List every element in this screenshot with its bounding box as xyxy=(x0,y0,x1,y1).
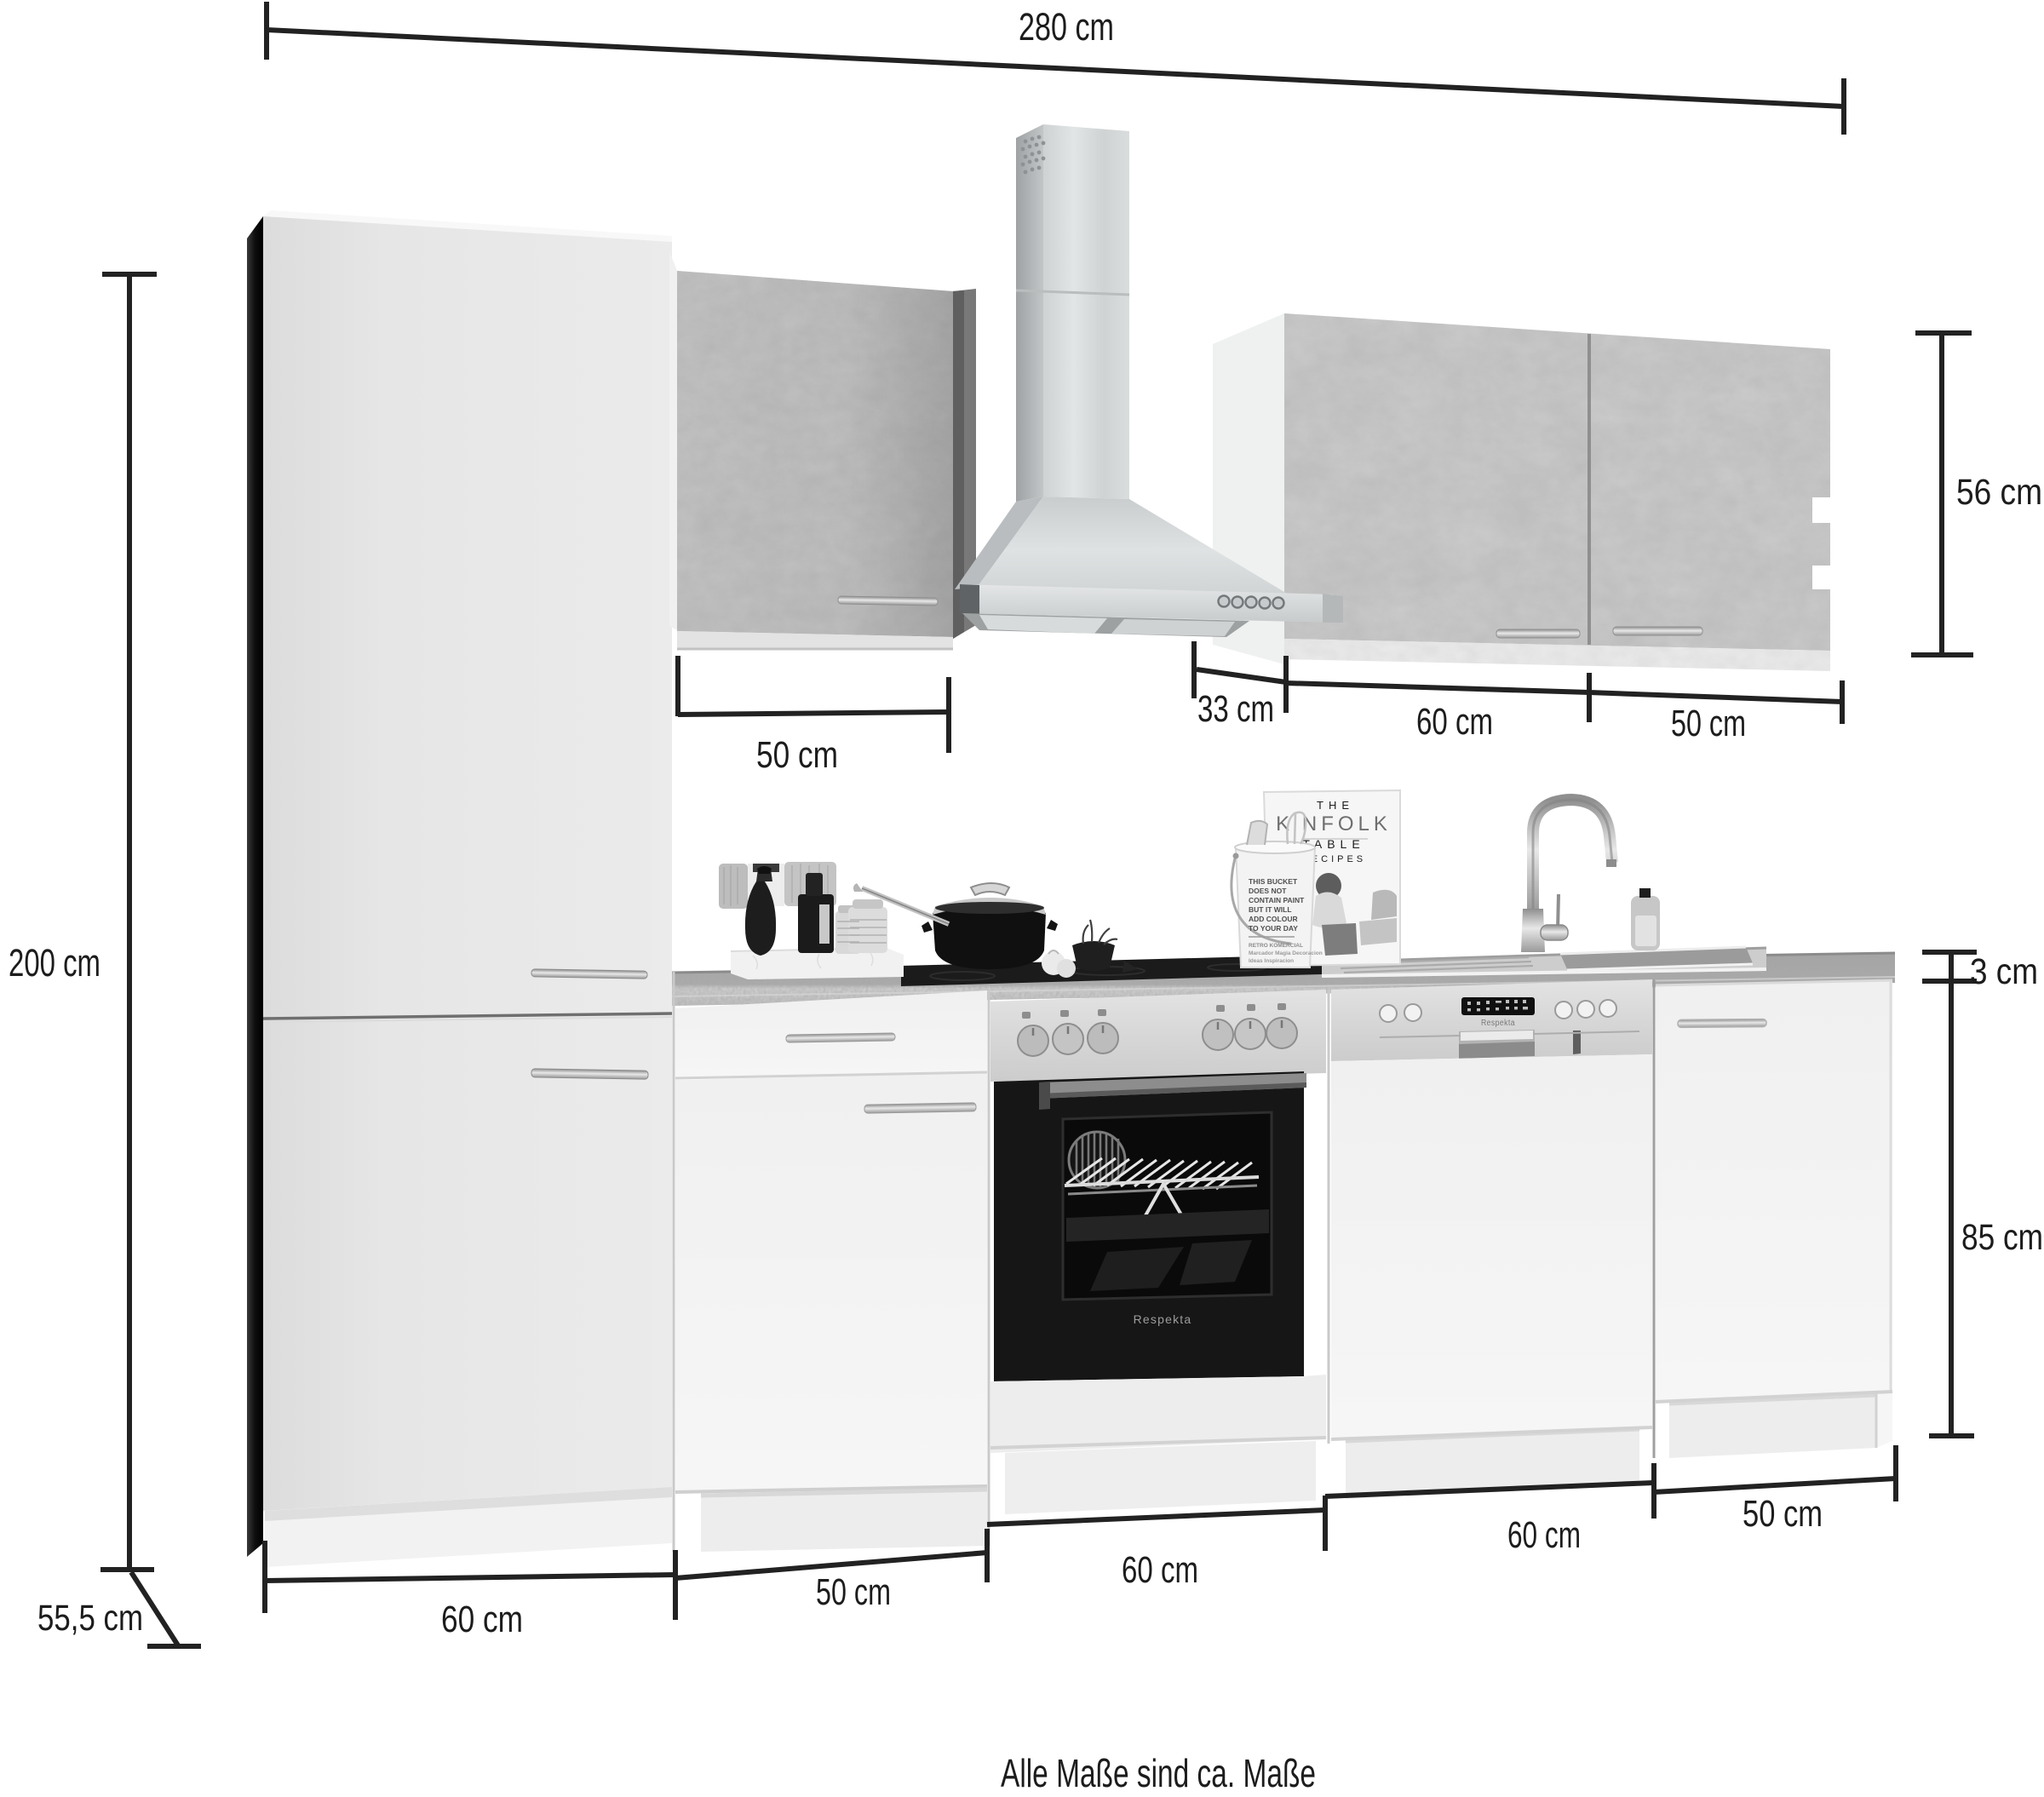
svg-text:60 cm: 60 cm xyxy=(1416,701,1493,743)
svg-text:50 cm: 50 cm xyxy=(1671,703,1746,744)
svg-text:CONTAIN PAINT: CONTAIN PAINT xyxy=(1249,896,1305,904)
svg-text:THE: THE xyxy=(1317,799,1354,812)
svg-text:BUT IT WILL: BUT IT WILL xyxy=(1249,905,1292,914)
svg-text:ADD COLOUR: ADD COLOUR xyxy=(1249,915,1298,923)
svg-text:60 cm: 60 cm xyxy=(1507,1514,1581,1556)
svg-text:200 cm: 200 cm xyxy=(9,941,100,985)
svg-text:50 cm: 50 cm xyxy=(816,1571,891,1613)
svg-text:Respekta: Respekta xyxy=(1481,1019,1515,1028)
svg-text:3 cm: 3 cm xyxy=(1970,951,2038,992)
svg-text:60 cm: 60 cm xyxy=(1122,1549,1198,1591)
svg-text:85 cm: 85 cm xyxy=(1961,1217,2043,1258)
svg-text:60 cm: 60 cm xyxy=(441,1599,523,1640)
svg-text:RETRO KOMERCIAL: RETRO KOMERCIAL xyxy=(1249,943,1303,949)
svg-text:56 cm: 56 cm xyxy=(1956,472,2042,513)
svg-text:280 cm: 280 cm xyxy=(1019,5,1114,49)
svg-text:Ideas Inspiracion: Ideas Inspiracion xyxy=(1249,958,1294,964)
svg-text:55,5 cm: 55,5 cm xyxy=(37,1598,143,1639)
svg-text:Marcador Magia Decoracion: Marcador Magia Decoracion xyxy=(1249,950,1323,956)
svg-text:TO YOUR DAY: TO YOUR DAY xyxy=(1249,924,1298,933)
svg-text:33 cm: 33 cm xyxy=(1197,688,1274,730)
svg-text:50 cm: 50 cm xyxy=(756,734,838,776)
svg-text:Respekta: Respekta xyxy=(1134,1312,1192,1326)
svg-text:DOES NOT: DOES NOT xyxy=(1249,887,1287,895)
svg-text:Alle Maße sind ca. Maße: Alle Maße sind ca. Maße xyxy=(1001,1751,1316,1795)
svg-text:THIS BUCKET: THIS BUCKET xyxy=(1249,877,1298,886)
svg-text:50 cm: 50 cm xyxy=(1743,1493,1823,1535)
